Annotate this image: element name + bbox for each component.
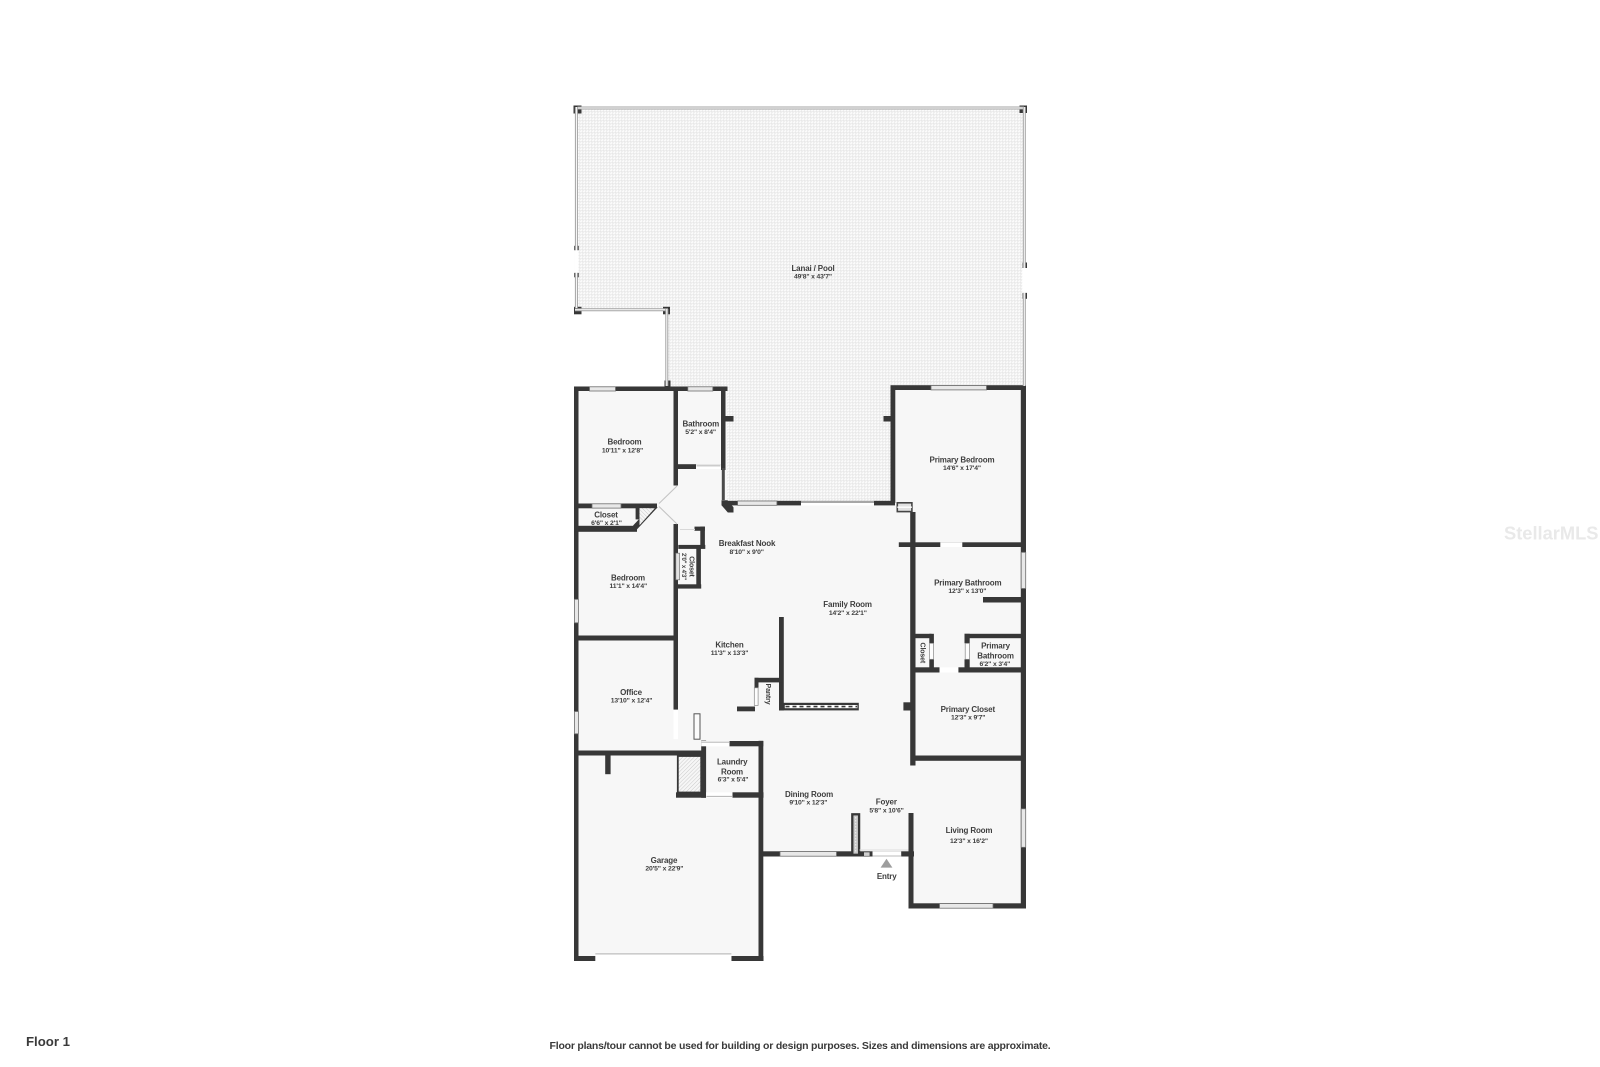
svg-text:Primary Bathroom: Primary Bathroom: [934, 579, 1001, 588]
svg-text:2'0" x 4'3": 2'0" x 4'3": [680, 553, 686, 580]
svg-text:Kitchen: Kitchen: [715, 640, 744, 649]
svg-text:Bedroom: Bedroom: [607, 438, 641, 447]
svg-text:Primary Bedroom: Primary Bedroom: [930, 455, 995, 464]
svg-text:Room: Room: [721, 767, 743, 776]
svg-text:9'10" x 12'3": 9'10" x 12'3": [789, 799, 827, 806]
svg-text:Family Room: Family Room: [823, 600, 872, 609]
svg-text:12'3" x 16'2": 12'3" x 16'2": [950, 838, 988, 845]
svg-text:Bathroom: Bathroom: [683, 420, 720, 429]
svg-text:Pantry: Pantry: [764, 684, 771, 705]
svg-text:12'3" x 13'0": 12'3" x 13'0": [948, 588, 986, 595]
svg-text:6'3" x 5'4": 6'3" x 5'4": [718, 777, 749, 784]
svg-text:11'1" x 14'4": 11'1" x 14'4": [610, 583, 648, 590]
svg-text:5'2" x 8'4": 5'2" x 8'4": [685, 429, 716, 436]
svg-text:Closet: Closet: [594, 511, 618, 520]
svg-text:12'3" x 9'7": 12'3" x 9'7": [951, 715, 985, 722]
svg-text:Office: Office: [620, 688, 642, 697]
svg-text:Foyer: Foyer: [876, 798, 897, 807]
svg-text:Floor plans/tour cannot be use: Floor plans/tour cannot be used for buil…: [550, 1040, 1051, 1052]
svg-text:Closet: Closet: [919, 643, 926, 664]
svg-text:Garage: Garage: [651, 856, 678, 865]
svg-text:11'3" x 13'3": 11'3" x 13'3": [711, 650, 749, 657]
svg-text:Dining Room: Dining Room: [785, 790, 833, 799]
svg-text:20'5" x 22'9": 20'5" x 22'9": [645, 866, 683, 873]
svg-text:14'2" x 22'1": 14'2" x 22'1": [829, 610, 867, 617]
svg-text:Breakfast Nook: Breakfast Nook: [719, 539, 776, 548]
svg-text:Bathroom: Bathroom: [977, 651, 1014, 660]
svg-text:Bedroom: Bedroom: [611, 573, 645, 582]
svg-text:10'11" x 12'8": 10'11" x 12'8": [602, 447, 643, 454]
svg-text:6'2" x 3'4": 6'2" x 3'4": [979, 661, 1010, 668]
svg-text:6'6" x 2'1": 6'6" x 2'1": [591, 520, 622, 527]
svg-text:13'10" x 12'4": 13'10" x 12'4": [611, 698, 653, 705]
svg-text:14'6" x 17'4": 14'6" x 17'4": [943, 465, 981, 472]
svg-text:Primary: Primary: [981, 641, 1010, 650]
svg-text:Entry: Entry: [877, 872, 897, 881]
svg-text:Laundry: Laundry: [717, 758, 748, 767]
svg-text:Lanai / Pool: Lanai / Pool: [791, 264, 834, 273]
svg-text:StellarMLS: StellarMLS: [1504, 523, 1598, 544]
svg-text:8'10" x 9'0": 8'10" x 9'0": [730, 549, 764, 556]
svg-text:49'8" x 43'7": 49'8" x 43'7": [794, 274, 832, 281]
svg-text:Primary Closet: Primary Closet: [941, 705, 996, 714]
svg-text:5'8" x 10'6": 5'8" x 10'6": [869, 807, 903, 814]
svg-text:Closet: Closet: [688, 556, 695, 577]
svg-text:Living Room: Living Room: [946, 826, 993, 835]
svg-text:Floor 1: Floor 1: [26, 1034, 70, 1049]
